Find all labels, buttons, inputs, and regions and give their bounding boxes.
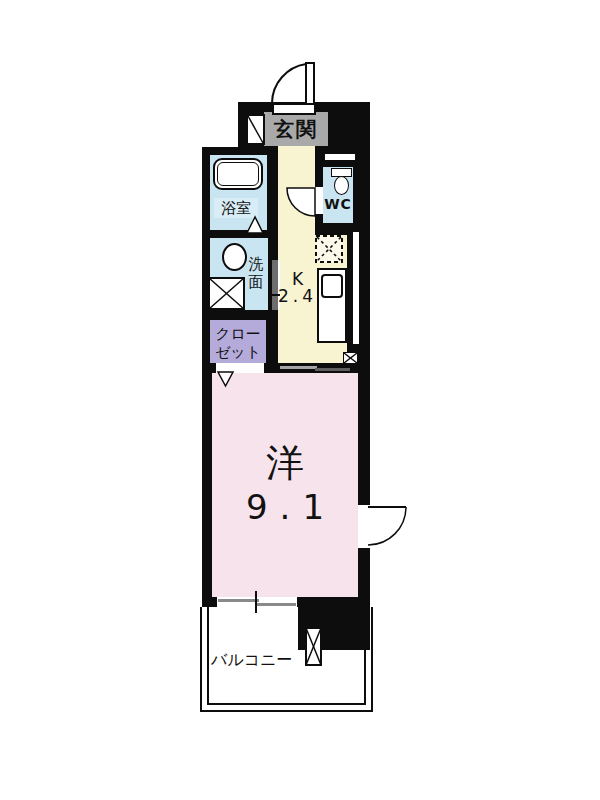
balcony-sliding-window-pane-right [256, 603, 296, 606]
room-right-door-arc [368, 507, 406, 545]
kitchen-room-sliding-door-pane-left [280, 366, 317, 369]
floor-plan: 玄関 浴室 洗 面 WC クロー ゼット K 2.4 洋 9.1 バルコニー [0, 0, 600, 800]
wc-window [325, 154, 355, 160]
shoe-cabinet [246, 114, 265, 145]
closet-door-opening [216, 363, 264, 373]
bathtub-icon [213, 158, 263, 190]
entrance-door-leaf [305, 62, 315, 105]
entrance-label-text: 玄関 [274, 116, 318, 143]
kitchen-label-dash [272, 294, 280, 296]
entrance-door-arc [272, 64, 306, 103]
washroom-label: 洗 面 [247, 255, 265, 291]
room-right-door-opening [358, 505, 370, 548]
washroom-label-char-1: 洗 [247, 255, 265, 273]
closet-label-line-2: ゼット [210, 343, 266, 361]
pipe-space-icon [343, 352, 358, 364]
closet-label-line-1: クロー [210, 325, 266, 343]
wc-door-opening [315, 187, 323, 214]
closet-label: クロー ゼット [210, 325, 266, 361]
kitchen-side-window [353, 232, 359, 344]
balcony-sliding-window-pane-left [218, 599, 259, 602]
kitchen-sink-icon [321, 274, 343, 298]
washing-machine-pan-icon [208, 277, 245, 310]
main-room-type-label: 洋 [212, 438, 358, 489]
kitchen-room-sliding-door-pane-right [315, 368, 350, 371]
bathroom-label: 浴室 [214, 198, 258, 218]
kitchen-size-label: 2.4 [278, 286, 317, 306]
wash-basin-icon [222, 243, 247, 271]
washroom-label-char-2: 面 [247, 273, 265, 291]
wc-label: WC [323, 196, 353, 212]
main-room-size-label: 9.1 [212, 487, 358, 527]
bathtub-inner-line [217, 162, 259, 186]
balcony-window-center-tick [255, 591, 257, 613]
toilet-bowl-icon [334, 176, 349, 195]
balcony-label: バルコニー [211, 650, 321, 671]
hall-kitchen-floor [278, 145, 315, 363]
entrance-label: 玄関 [264, 112, 328, 146]
